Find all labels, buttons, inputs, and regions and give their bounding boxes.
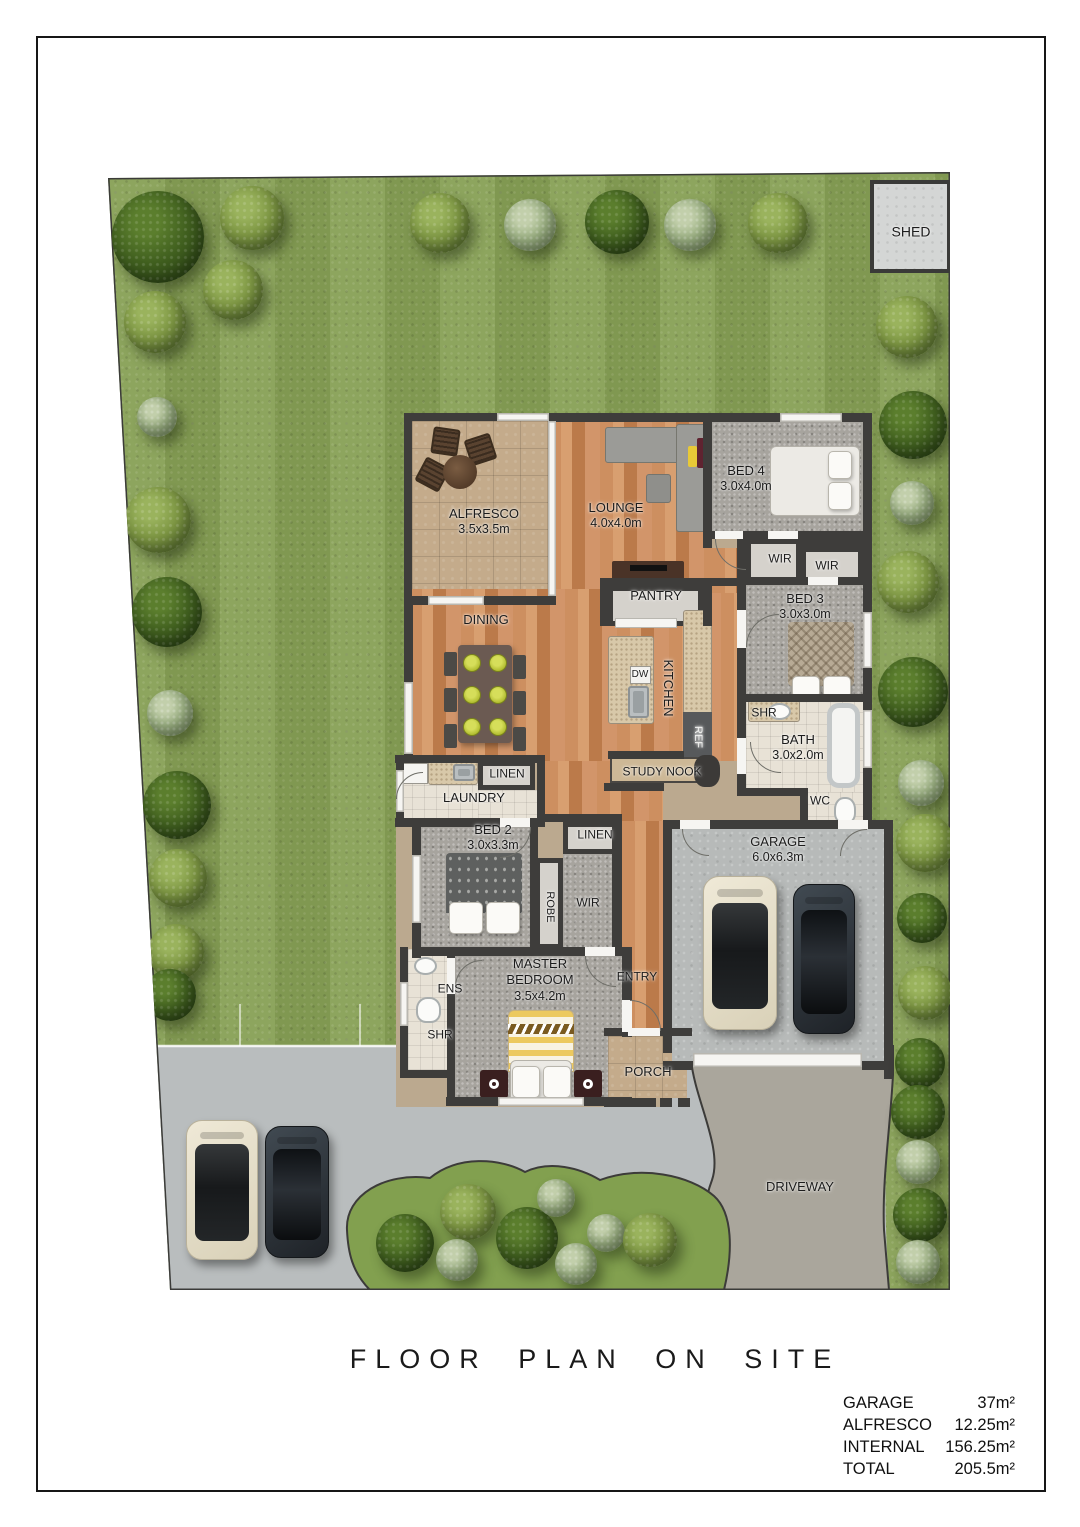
floor-plan-page: SHEDALFRESCO3.5x3.5mLOUNGE4.0x4.0mBED 43… bbox=[0, 0, 1080, 1527]
legend-label: TOTAL bbox=[843, 1458, 895, 1480]
page-title: FLOOR PLAN ON SITE bbox=[150, 1344, 1040, 1375]
legend-row-internal: INTERNAL156.25m² bbox=[843, 1436, 1015, 1458]
legend-label: GARAGE bbox=[843, 1392, 914, 1414]
legend-value: 12.25m² bbox=[954, 1414, 1015, 1436]
legend-value: 205.5m² bbox=[954, 1458, 1015, 1480]
legend-label: ALFRESCO bbox=[843, 1414, 932, 1436]
legend-row-total: TOTAL205.5m² bbox=[843, 1458, 1015, 1480]
legend-row-garage: GARAGE37m² bbox=[843, 1392, 1015, 1414]
legend-label: INTERNAL bbox=[843, 1436, 925, 1458]
legend-value: 156.25m² bbox=[945, 1436, 1015, 1458]
page-border-frame bbox=[36, 36, 1046, 1492]
area-legend: GARAGE37m²ALFRESCO12.25m²INTERNAL156.25m… bbox=[843, 1392, 1015, 1480]
legend-value: 37m² bbox=[977, 1392, 1015, 1414]
legend-row-alfresco: ALFRESCO12.25m² bbox=[843, 1414, 1015, 1436]
